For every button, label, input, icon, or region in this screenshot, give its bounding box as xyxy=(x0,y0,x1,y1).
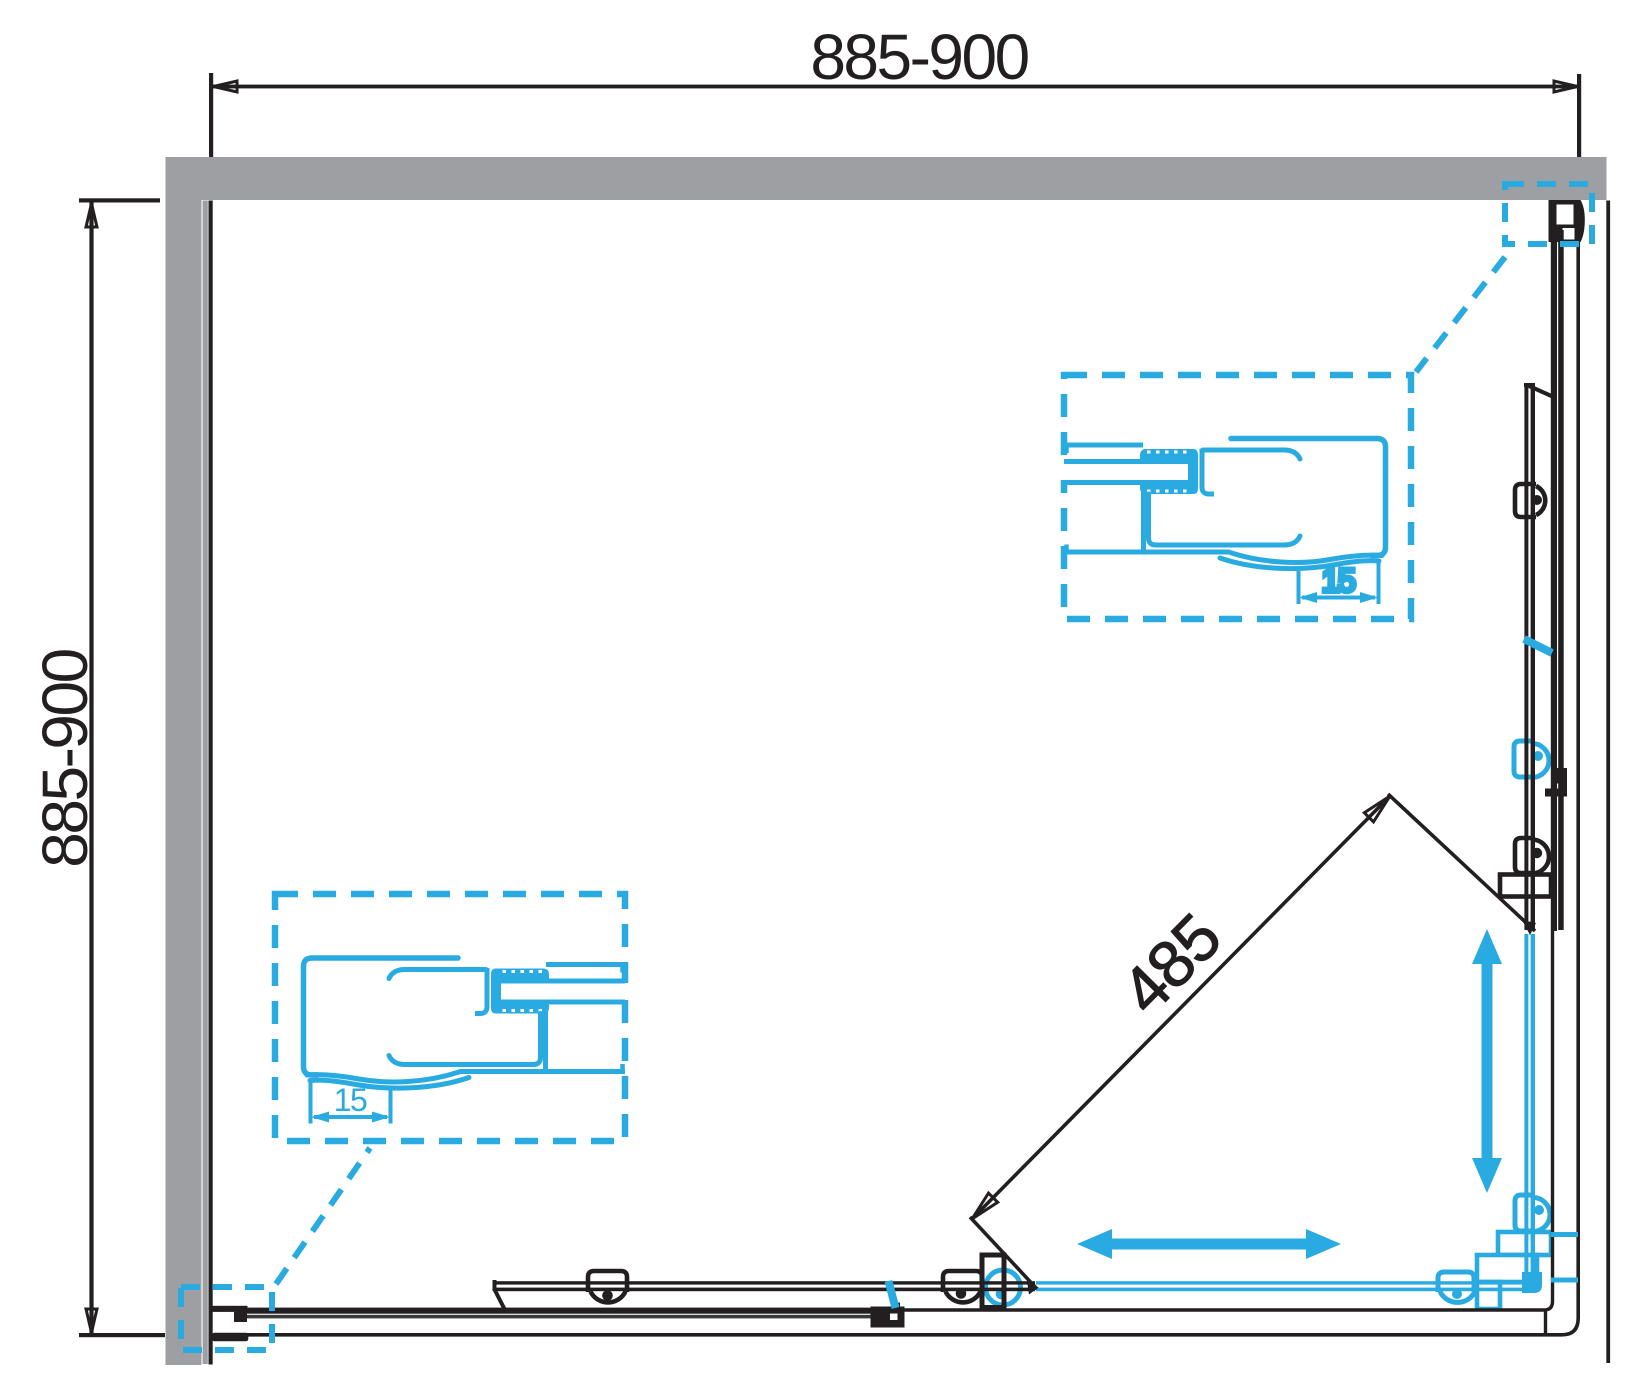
svg-text:885-900: 885-900 xyxy=(29,649,101,867)
svg-text:15: 15 xyxy=(1322,563,1355,599)
svg-text:885-900: 885-900 xyxy=(810,21,1028,93)
svg-text:485: 485 xyxy=(1107,900,1235,1028)
svg-text:15: 15 xyxy=(334,1082,367,1118)
